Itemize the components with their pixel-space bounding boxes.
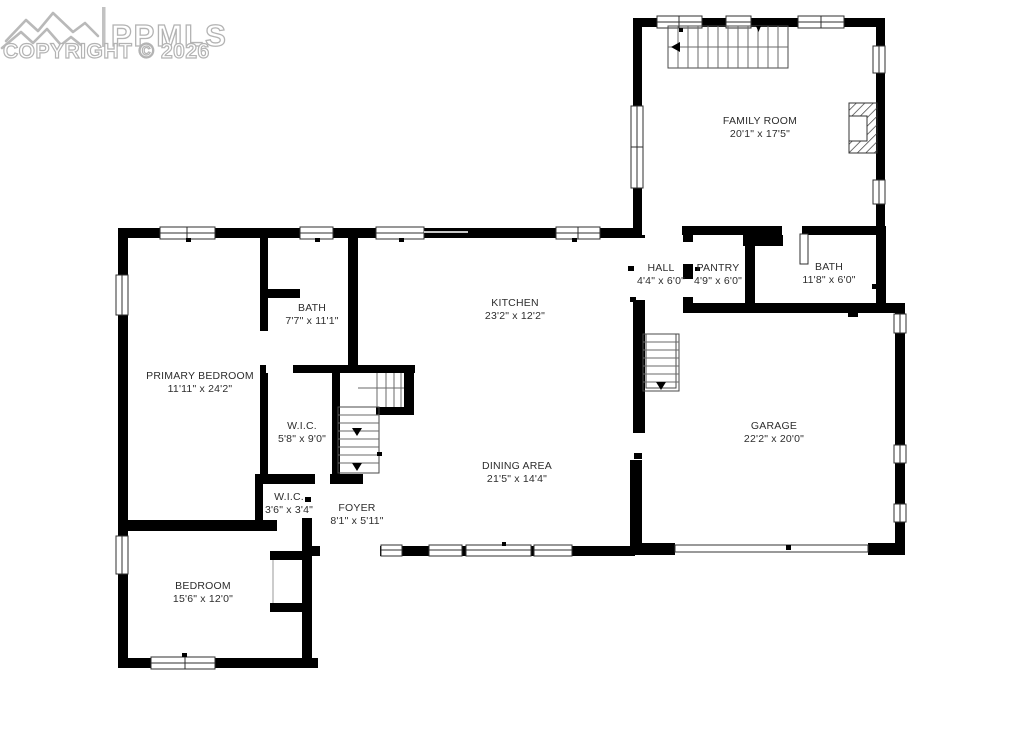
room-dims-primary-bath: 7'7" x 11'1" bbox=[285, 315, 338, 327]
room-label-dining-area: DINING AREA21'5" x 14'4" bbox=[482, 460, 552, 485]
pantry-door-opening bbox=[683, 242, 693, 264]
wic-door-opening bbox=[266, 365, 293, 373]
room-dims-dining-area: 21'5" x 14'4" bbox=[487, 473, 547, 485]
room-label-family-room: FAMILY ROOM20'1" x 17'5" bbox=[723, 115, 797, 140]
room-name-dining-area: DINING AREA bbox=[482, 460, 552, 472]
room-dims-bedroom: 15'6" x 12'0" bbox=[173, 593, 233, 605]
room-dims-bath-hall: 11'8" x 6'0" bbox=[802, 274, 855, 286]
room-name-garage: GARAGE bbox=[751, 420, 797, 432]
room-label-foyer: FOYER8'1" x 5'11" bbox=[330, 502, 383, 527]
room-dims-primary-bedroom: 11'11" x 24'2" bbox=[168, 383, 233, 395]
room-label-bedroom: BEDROOM15'6" x 12'0" bbox=[173, 580, 233, 605]
bath-hall-door-opening bbox=[782, 226, 802, 235]
room-name-primary-bedroom: PRIMARY BEDROOM bbox=[146, 370, 254, 382]
room-dims-pantry: 4'9" x 6'0" bbox=[694, 275, 742, 287]
room-dims-wic-large: 5'8" x 9'0" bbox=[278, 433, 326, 445]
room-dims-kitchen: 23'2" x 12'2" bbox=[485, 310, 545, 322]
room-name-bath-hall: BATH bbox=[815, 261, 843, 273]
room-label-primary-bedroom: PRIMARY BEDROOM11'11" x 24'2" bbox=[146, 370, 254, 395]
room-label-pantry: PANTRY4'9" x 6'0" bbox=[694, 262, 742, 287]
fireplace bbox=[849, 103, 877, 153]
room-name-foyer: FOYER bbox=[338, 502, 375, 514]
bath-hall-door-leaf bbox=[800, 234, 808, 264]
room-name-wic-small: W.I.C. bbox=[274, 491, 304, 503]
room-name-primary-bath: BATH bbox=[298, 302, 326, 314]
room-label-kitchen: KITCHEN23'2" x 12'2" bbox=[485, 297, 545, 322]
stair-direction-arrow bbox=[671, 42, 680, 52]
room-name-wic-large: W.I.C. bbox=[287, 420, 317, 432]
room-name-hall: HALL bbox=[647, 262, 674, 274]
room-dims-foyer: 8'1" x 5'11" bbox=[330, 515, 383, 527]
stair-direction-arrow bbox=[656, 382, 666, 390]
basement-stairs bbox=[643, 334, 679, 391]
primary-bath-door-opening bbox=[260, 331, 268, 365]
room-label-wic-small: W.I.C.3'6" x 3'4" bbox=[265, 491, 313, 516]
central-stairs bbox=[338, 373, 404, 473]
floor-plan-page: PPMLS COPYRIGHT © 2026 bbox=[0, 0, 1023, 729]
ppmls-watermark: PPMLS COPYRIGHT © 2026 bbox=[2, 7, 228, 63]
room-label-garage: GARAGE22'2" x 20'0" bbox=[744, 420, 804, 445]
room-dims-family-room: 20'1" x 17'5" bbox=[730, 128, 790, 140]
room-label-wic-large: W.I.C.5'8" x 9'0" bbox=[278, 420, 326, 445]
room-dims-garage: 22'2" x 20'0" bbox=[744, 433, 804, 445]
room-label-bath-hall: BATH11'8" x 6'0" bbox=[802, 261, 855, 286]
family-room-stairs bbox=[668, 26, 788, 68]
room-name-family-room: FAMILY ROOM bbox=[723, 115, 797, 127]
hall-to-family-room-opening bbox=[642, 226, 682, 235]
stair-tick bbox=[756, 26, 761, 32]
room-name-pantry: PANTRY bbox=[697, 262, 740, 274]
room-label-hall: HALL4'4" x 6'0" bbox=[637, 262, 685, 287]
room-dims-wic-small: 3'6" x 3'4" bbox=[265, 504, 313, 516]
stair-direction-arrow bbox=[352, 428, 362, 436]
room-label-primary-bath: BATH7'7" x 11'1" bbox=[285, 302, 338, 327]
mountain-logo-icon bbox=[6, 13, 98, 41]
watermark-copyright: COPYRIGHT © 2026 bbox=[3, 40, 210, 63]
front-entry-opening bbox=[320, 546, 380, 556]
room-name-bedroom: BEDROOM bbox=[175, 580, 231, 592]
garage-door bbox=[675, 545, 868, 552]
stair-direction-arrow bbox=[352, 463, 362, 471]
floor-plan-svg: PPMLS COPYRIGHT © 2026 bbox=[0, 0, 1023, 729]
room-dims-hall: 4'4" x 6'0" bbox=[637, 275, 685, 287]
windows bbox=[116, 16, 906, 669]
room-name-kitchen: KITCHEN bbox=[491, 297, 539, 309]
